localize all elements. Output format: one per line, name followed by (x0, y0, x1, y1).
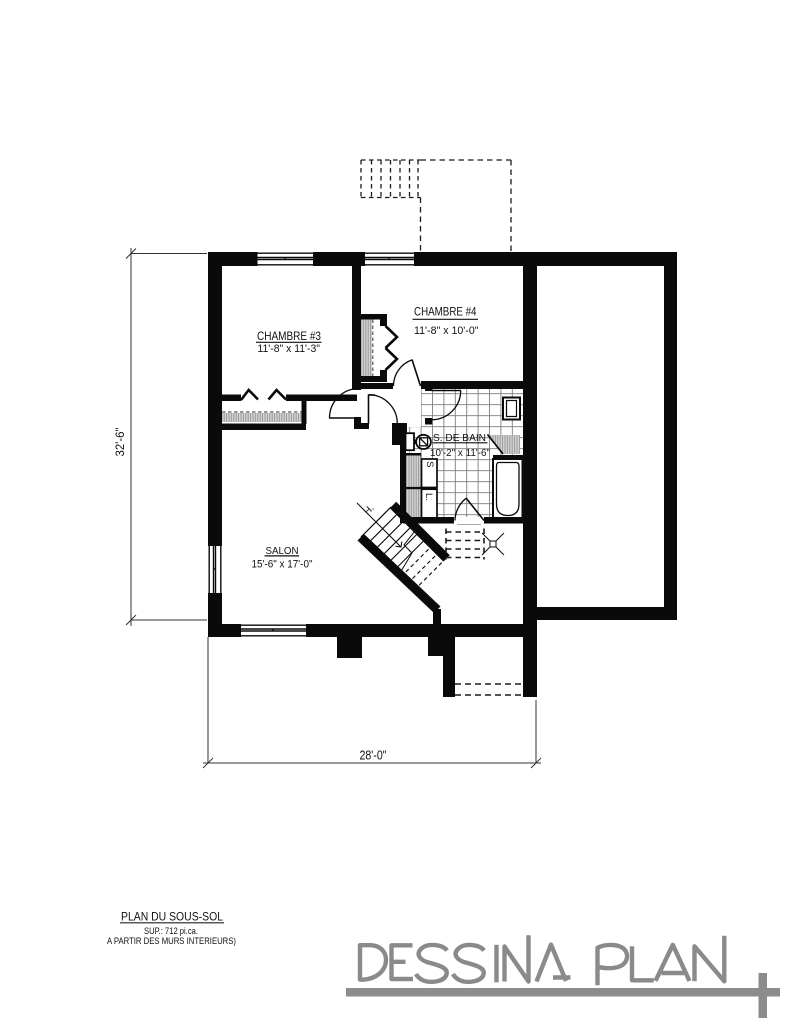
svg-text:SUP.: 712 pi.ca.: SUP.: 712 pi.ca. (144, 926, 198, 936)
svg-text:SALON: SALON (266, 546, 299, 557)
svg-text:32'-6": 32'-6" (113, 428, 127, 457)
svg-text:11'-8" x 11'-3": 11'-8" x 11'-3" (258, 343, 321, 355)
svg-text:15'-6" x 17'-0": 15'-6" x 17'-0" (252, 559, 313, 571)
svg-text:CHAMBRE #3: CHAMBRE #3 (257, 329, 321, 343)
svg-text:CHAMBRE #4: CHAMBRE #4 (414, 304, 477, 318)
svg-text:28'-0": 28'-0" (360, 748, 387, 762)
svg-text:10'-2" x 11'-6": 10'-2" x 11'-6" (430, 448, 490, 459)
svg-text:S: S (424, 461, 435, 467)
svg-text:PLAN DU SOUS-SOL: PLAN DU SOUS-SOL (121, 910, 223, 924)
svg-text:11'-8" x 10'-0": 11'-8" x 10'-0" (414, 325, 479, 337)
svg-text:A PARTIR DES MURS INTERIEURS): A PARTIR DES MURS INTERIEURS) (107, 936, 236, 946)
svg-text:L.: L. (423, 493, 434, 501)
